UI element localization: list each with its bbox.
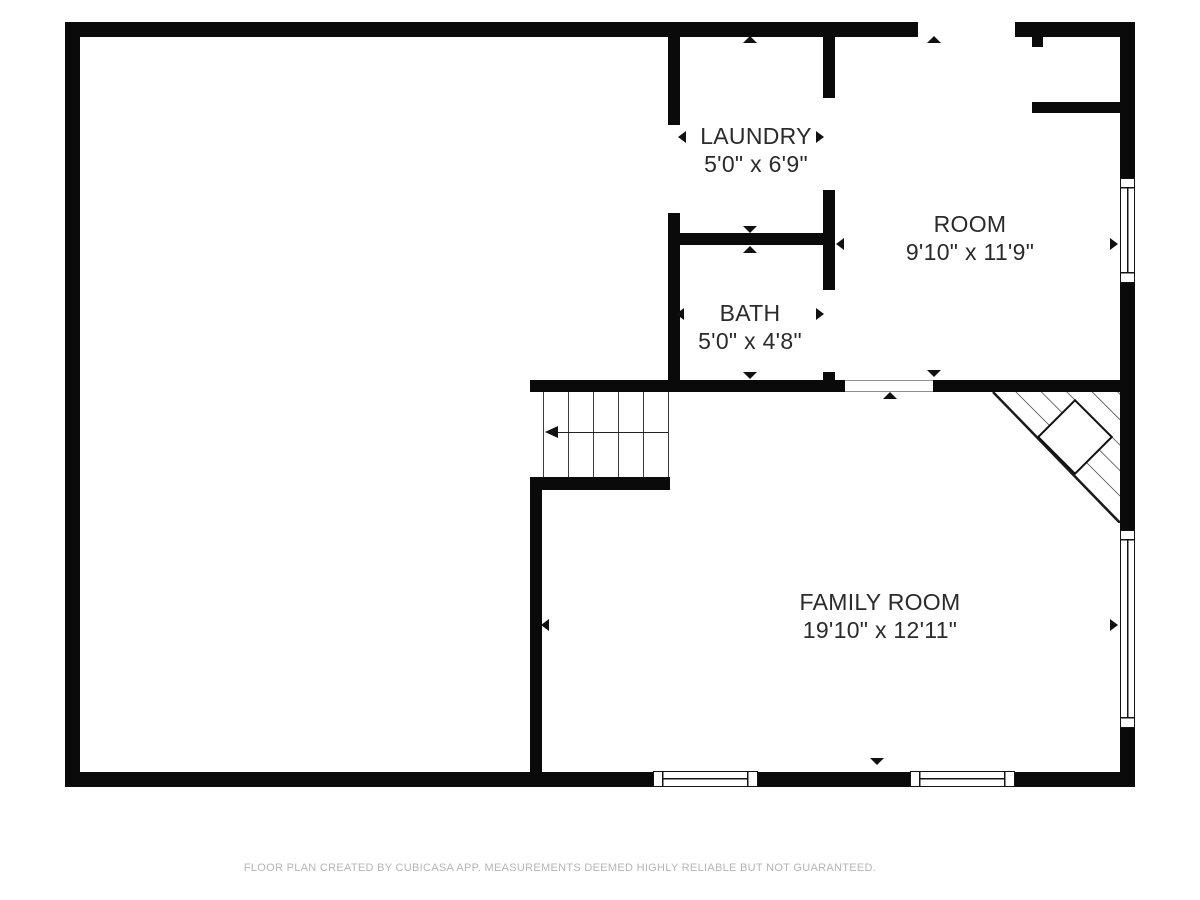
closet-left-wall-stub xyxy=(1032,37,1043,47)
family-room-left-wall xyxy=(530,490,542,772)
exterior-wall-right-middle xyxy=(1120,283,1135,530)
room-label: ROOM 9'10" x 11'9" xyxy=(870,210,1070,266)
room-measure-arrow-right-icon xyxy=(1110,238,1118,250)
room-measure-arrow-left-icon xyxy=(836,238,844,250)
bath-measure-arrow-left-icon xyxy=(676,308,684,320)
laundry-measure-arrow-right-icon xyxy=(816,131,824,143)
room-right-window xyxy=(1120,178,1135,283)
laundry-right-wall-upper xyxy=(823,37,835,98)
bath-room-dimensions: 5'0" x 4'8" xyxy=(650,327,850,355)
laundry-room-label: LAUNDRY 5'0" x 6'9" xyxy=(656,122,856,178)
family-measure-arrow-up-icon xyxy=(883,392,897,399)
room-name: ROOM xyxy=(870,210,1070,238)
family-measure-arrow-left-icon xyxy=(541,619,549,631)
room-bottom-wall xyxy=(933,380,1135,392)
bath-measure-arrow-up-icon xyxy=(743,246,757,253)
winder-stairs xyxy=(990,392,1120,523)
laundry-room-dimensions: 5'0" x 6'9" xyxy=(656,150,856,178)
stairs-bottom-wall xyxy=(530,477,670,490)
laundry-bath-divider-wall xyxy=(668,233,835,245)
bath-measure-arrow-down-icon xyxy=(743,372,757,379)
stairs-direction-line xyxy=(553,432,668,433)
room-measure-arrow-up-icon xyxy=(927,36,941,43)
exterior-wall-left xyxy=(65,22,80,787)
family-room-right-window xyxy=(1120,530,1135,728)
exterior-wall-right-lower xyxy=(1120,728,1135,787)
laundry-room-name: LAUNDRY xyxy=(656,122,856,150)
family-measure-arrow-right-icon xyxy=(1110,619,1118,631)
exterior-wall-top-left xyxy=(65,22,918,37)
laundry-left-wall-upper xyxy=(668,37,680,125)
family-room-bottom-window-left xyxy=(653,771,758,787)
family-room-dimensions: 19'10" x 12'11" xyxy=(780,616,980,644)
room-dimensions: 9'10" x 11'9" xyxy=(870,238,1070,266)
room-measure-arrow-down-icon xyxy=(927,370,941,377)
stairs-direction-arrow-icon xyxy=(545,426,558,438)
floor-plan: LAUNDRY 5'0" x 6'9" BATH 5'0" x 4'8" ROO… xyxy=(0,0,1200,900)
family-room-name: FAMILY ROOM xyxy=(780,588,980,616)
stairs-top-wall xyxy=(530,380,845,392)
exterior-wall-top-right xyxy=(1015,22,1135,37)
footer-disclaimer: FLOOR PLAN CREATED BY CUBICASA APP. MEAS… xyxy=(0,862,1120,874)
bath-measure-arrow-right-icon xyxy=(816,308,824,320)
family-room-label: FAMILY ROOM 19'10" x 12'11" xyxy=(780,588,980,644)
laundry-measure-arrow-down-icon xyxy=(743,226,757,233)
closet-bottom-wall xyxy=(1032,102,1120,113)
exterior-wall-right-upper xyxy=(1120,22,1135,178)
family-room-bottom-window-right xyxy=(910,771,1015,787)
staircase xyxy=(543,392,669,477)
family-measure-arrow-down-icon xyxy=(870,758,884,765)
laundry-measure-arrow-left-icon xyxy=(678,131,686,143)
laundry-measure-arrow-up-icon xyxy=(743,36,757,43)
room-family-door-opening xyxy=(845,380,933,392)
